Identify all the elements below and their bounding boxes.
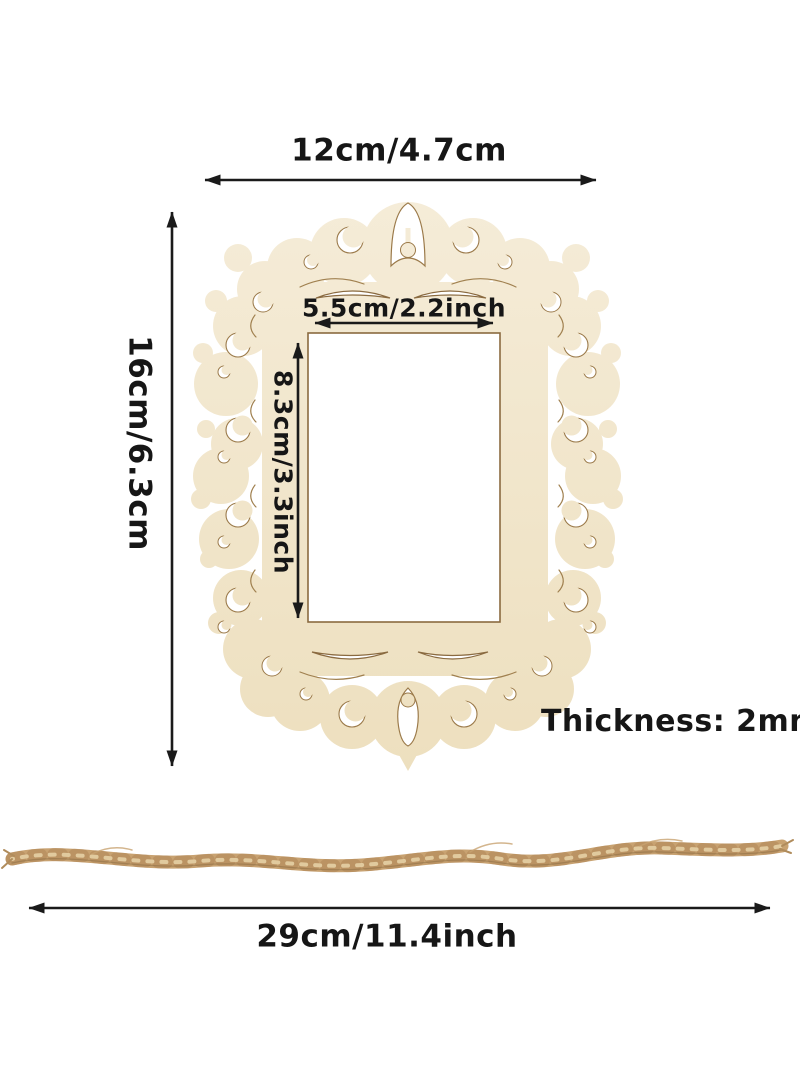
product-dimension-diagram: 12cm/4.7cm 16cm/6.3cm 5.5cm/2.2inch 8.3c…: [0, 0, 800, 1091]
inner-height-label: 8.3cm/3.3inch: [271, 370, 296, 574]
outer-height-label: 16cm/6.3cm: [124, 335, 155, 551]
ornate-frame-illustration: [191, 202, 623, 771]
inner-width-label: 5.5cm/2.2inch: [302, 296, 506, 321]
outer-width-label: 12cm/4.7cm: [291, 136, 507, 167]
thickness-label: Thickness: 2mm: [541, 707, 800, 737]
jute-twine-illustration: [2, 839, 793, 869]
rope-length-label: 29cm/11.4inch: [256, 922, 517, 953]
frame-photo-window: [308, 333, 500, 622]
